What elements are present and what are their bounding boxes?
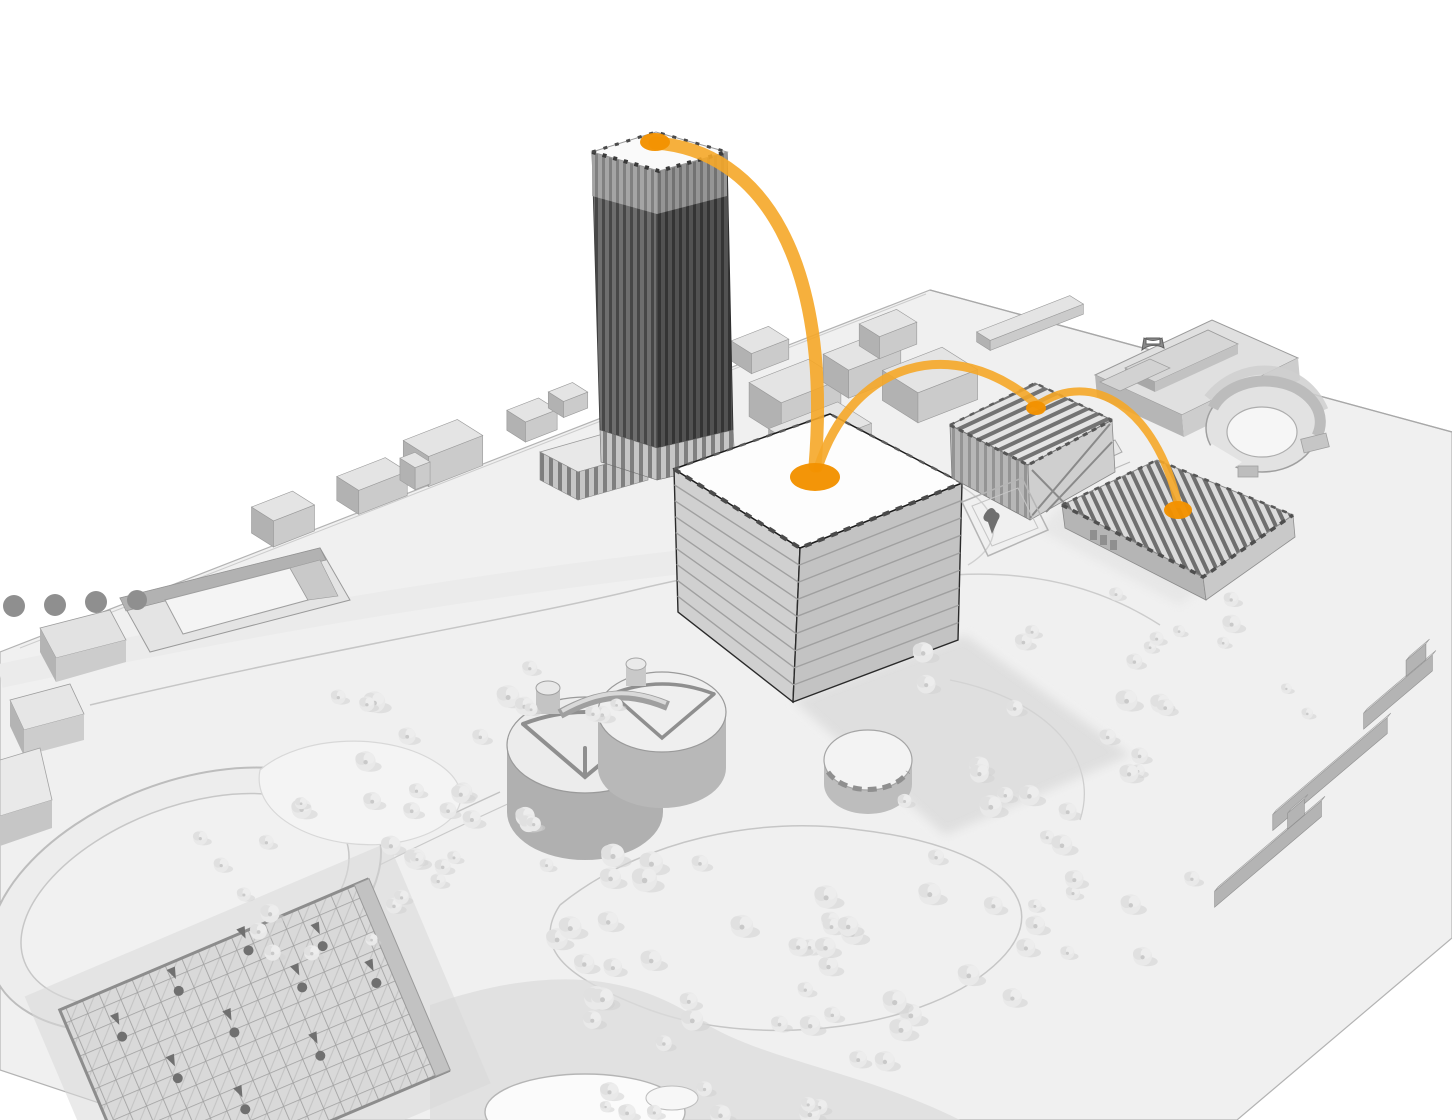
street-dot <box>85 591 107 613</box>
tower-roof-node[interactable] <box>640 133 670 151</box>
tower <box>592 132 735 480</box>
cube-roof-node[interactable] <box>790 463 840 491</box>
ribbed-hall-roof-node[interactable] <box>1164 501 1192 519</box>
street-dot <box>3 595 25 617</box>
site-axonometric-diagram <box>0 0 1452 1120</box>
street-dot <box>44 594 66 616</box>
street-dot <box>127 590 147 610</box>
site-model-canvas <box>0 0 1452 1120</box>
truss-pavilion-roof-node[interactable] <box>1026 401 1046 415</box>
